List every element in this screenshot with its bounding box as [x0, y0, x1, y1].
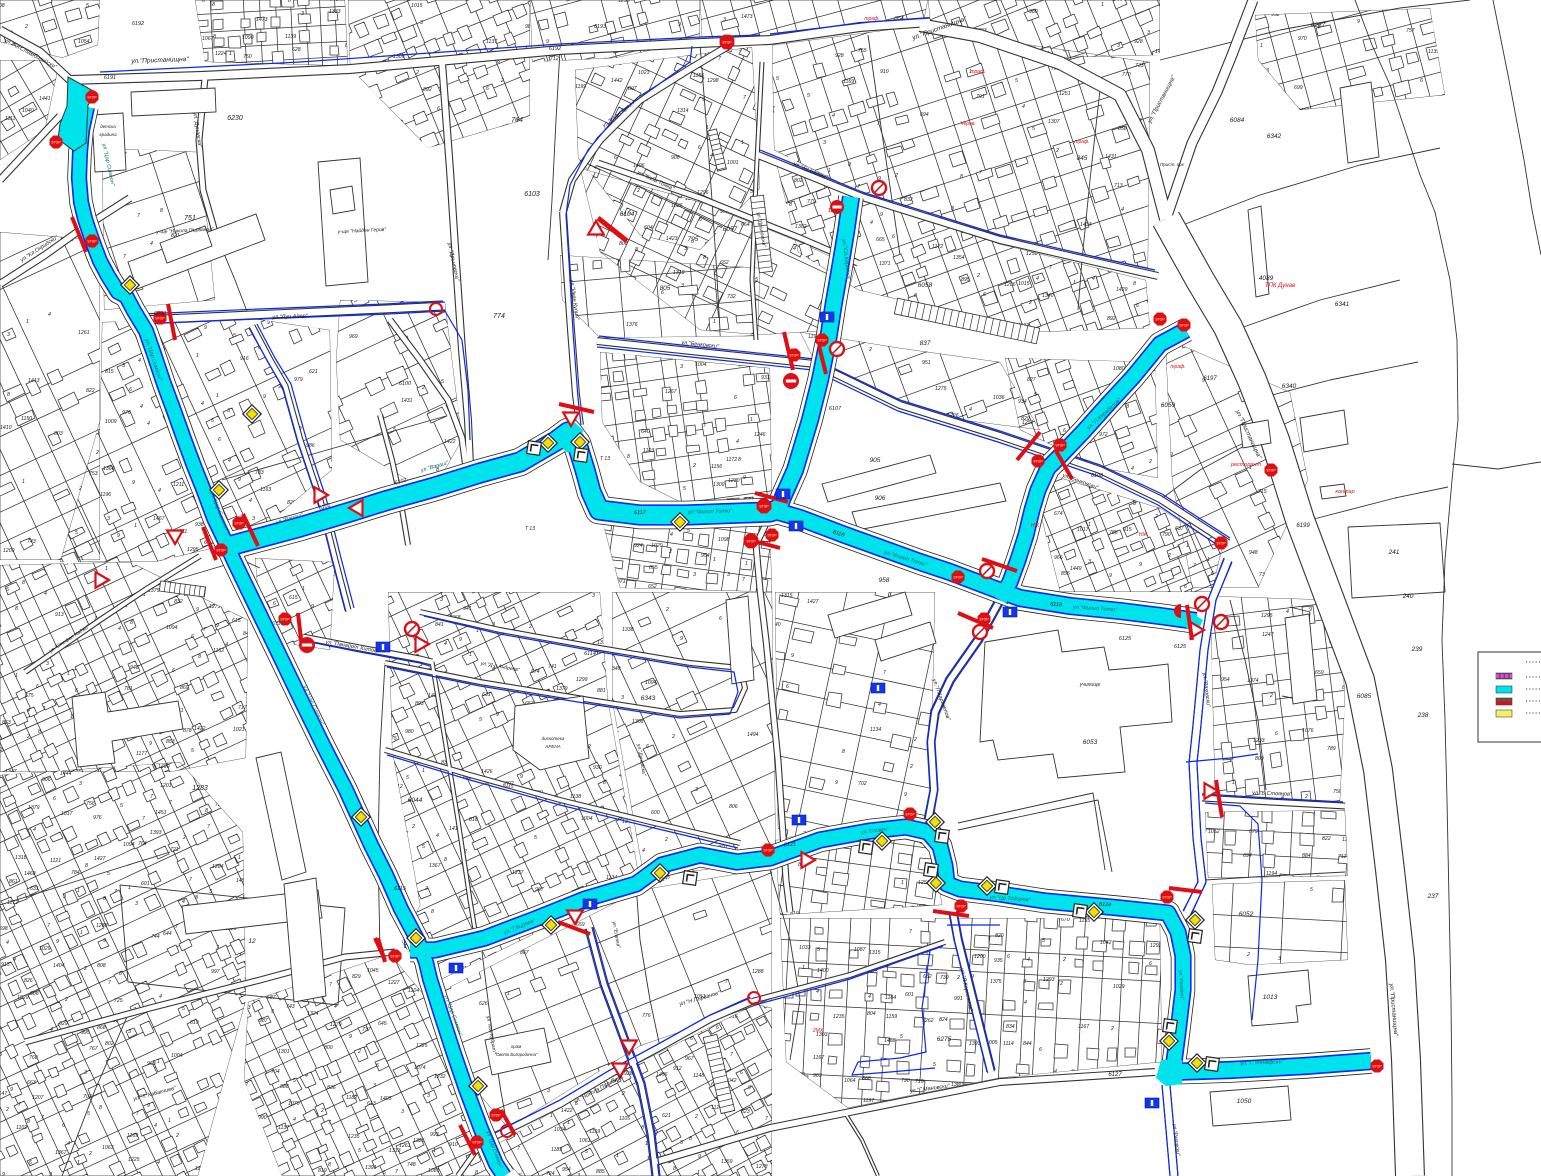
svg-text:6: 6 — [786, 684, 789, 690]
svg-text:5: 5 — [441, 379, 444, 385]
svg-text:2: 2 — [1269, 693, 1273, 699]
svg-text:836: 836 — [327, 1085, 336, 1091]
svg-text:913: 913 — [55, 612, 64, 618]
svg-text:2: 2 — [182, 835, 186, 841]
svg-text:1451: 1451 — [155, 810, 167, 816]
svg-text:938: 938 — [195, 522, 204, 528]
svg-text:2: 2 — [528, 624, 532, 630]
svg-text:863: 863 — [2, 720, 11, 726]
svg-text:834: 834 — [1006, 1024, 1015, 1030]
svg-text:1288: 1288 — [96, 923, 108, 929]
svg-text:6115: 6115 — [394, 886, 407, 892]
svg-text:2: 2 — [909, 764, 913, 770]
svg-text:715: 715 — [1258, 489, 1267, 495]
svg-text:6: 6 — [1007, 954, 1010, 960]
svg-text:4: 4 — [44, 591, 47, 597]
svg-text:954: 954 — [1221, 677, 1230, 683]
svg-text:897: 897 — [628, 86, 638, 92]
svg-text:ресторант: ресторант — [1230, 462, 1262, 468]
svg-text:4: 4 — [154, 1123, 157, 1129]
svg-text:2: 2 — [1110, 1026, 1114, 1032]
svg-text:3: 3 — [1117, 43, 1120, 49]
svg-text:1393: 1393 — [150, 830, 162, 836]
svg-text:1070: 1070 — [288, 1101, 300, 1107]
svg-text:1426: 1426 — [481, 769, 493, 775]
svg-text:1307: 1307 — [1048, 119, 1061, 125]
svg-text:1324: 1324 — [307, 1011, 319, 1017]
svg-text:1: 1 — [507, 991, 510, 997]
svg-text:2: 2 — [956, 975, 960, 981]
svg-text:1: 1 — [22, 479, 25, 485]
svg-text:6100: 6100 — [399, 381, 412, 387]
svg-text:993: 993 — [430, 1132, 439, 1138]
svg-text:9: 9 — [49, 1172, 52, 1176]
svg-text:822: 822 — [86, 388, 95, 394]
svg-text:767: 767 — [89, 1046, 99, 1052]
svg-text:9: 9 — [743, 475, 746, 481]
svg-text:713: 713 — [1114, 183, 1123, 189]
svg-text:760: 760 — [29, 1055, 38, 1061]
svg-text:1376: 1376 — [626, 322, 638, 328]
svg-text:6: 6 — [273, 601, 276, 607]
svg-text:8: 8 — [7, 392, 10, 398]
svg-text:1020: 1020 — [651, 543, 663, 549]
svg-text:717: 717 — [238, 705, 248, 711]
svg-text:844: 844 — [1023, 1041, 1032, 1047]
svg-text:6: 6 — [1420, 78, 1423, 84]
svg-text:5: 5 — [211, 418, 214, 424]
svg-text:3: 3 — [0, 1052, 2, 1058]
svg-text:2: 2 — [421, 385, 425, 391]
svg-text:1182: 1182 — [346, 1095, 357, 1101]
svg-text:804: 804 — [867, 1011, 876, 1017]
svg-text:1308: 1308 — [632, 719, 644, 725]
svg-text:1: 1 — [216, 393, 219, 399]
svg-text:764: 764 — [511, 117, 523, 124]
svg-text:3: 3 — [547, 1088, 550, 1094]
svg-text:4: 4 — [138, 358, 141, 364]
svg-text:9: 9 — [2, 1172, 5, 1176]
svg-text:2: 2 — [668, 549, 672, 555]
svg-text:4: 4 — [33, 827, 36, 833]
svg-text:1340: 1340 — [1042, 293, 1054, 299]
svg-text:954: 954 — [701, 553, 710, 559]
svg-text:1: 1 — [134, 523, 137, 529]
svg-text:6342: 6342 — [1267, 133, 1282, 140]
svg-text:826: 826 — [24, 978, 33, 984]
svg-text:8: 8 — [738, 457, 741, 463]
svg-text:1295: 1295 — [1261, 613, 1273, 619]
svg-text:795: 795 — [688, 236, 699, 243]
svg-text:6108: 6108 — [1091, 473, 1104, 479]
svg-text:1: 1 — [302, 586, 305, 592]
svg-text:1036: 1036 — [993, 395, 1005, 401]
svg-text:679: 679 — [1249, 829, 1258, 835]
svg-text:училище: училище — [1079, 682, 1101, 688]
svg-text:2: 2 — [320, 1108, 324, 1114]
svg-text:4: 4 — [159, 994, 162, 1000]
svg-text:3: 3 — [84, 1070, 87, 1076]
svg-text:623: 623 — [741, 1109, 750, 1115]
svg-text:9: 9 — [496, 712, 499, 718]
svg-text:621: 621 — [309, 369, 318, 375]
svg-text:954: 954 — [562, 1167, 571, 1173]
svg-text:659: 659 — [1315, 670, 1324, 676]
svg-text:STOP: STOP — [767, 534, 777, 538]
svg-text:8: 8 — [15, 606, 18, 612]
svg-text:3: 3 — [723, 17, 726, 23]
svg-text:1200: 1200 — [974, 954, 986, 960]
svg-text:881: 881 — [597, 688, 606, 694]
svg-text:908: 908 — [0, 3, 5, 9]
svg-text:645: 645 — [378, 1021, 387, 1027]
svg-text:STOP: STOP — [51, 141, 61, 145]
svg-text:237: 237 — [1427, 893, 1439, 900]
svg-text:790: 790 — [1162, 532, 1171, 538]
svg-text:6: 6 — [1039, 1047, 1042, 1053]
svg-text:1017: 1017 — [61, 811, 74, 817]
svg-text:4: 4 — [816, 989, 819, 995]
svg-text:652: 652 — [923, 974, 932, 980]
svg-text:631: 631 — [482, 692, 491, 698]
svg-text:2: 2 — [692, 463, 696, 469]
svg-text:6: 6 — [614, 155, 617, 161]
svg-text:663: 663 — [27, 1080, 36, 1086]
svg-text:6: 6 — [716, 1025, 719, 1031]
svg-text:ТПК Дунав: ТПК Дунав — [1265, 283, 1295, 289]
svg-text:1314: 1314 — [677, 108, 689, 114]
svg-text:детска: детска — [100, 124, 116, 129]
svg-text:915: 915 — [1123, 527, 1132, 533]
svg-text:652: 652 — [720, 260, 729, 266]
svg-text:1354: 1354 — [953, 255, 965, 261]
svg-text:6: 6 — [646, 744, 649, 750]
svg-text:STOP: STOP — [491, 1114, 501, 1118]
svg-text:1410: 1410 — [0, 425, 12, 431]
svg-text:2: 2 — [621, 1091, 625, 1097]
svg-text:4: 4 — [1092, 276, 1095, 282]
svg-text:1040: 1040 — [22, 108, 34, 114]
svg-text:1: 1 — [567, 1120, 570, 1126]
svg-text:905: 905 — [870, 457, 881, 464]
svg-text:1098: 1098 — [718, 537, 730, 543]
svg-text:1206: 1206 — [1004, 282, 1016, 288]
svg-text:ул."Луи Айер": ул."Луи Айер" — [271, 312, 308, 320]
svg-text:6: 6 — [719, 616, 722, 622]
svg-text:615: 615 — [289, 595, 298, 601]
svg-text:867: 867 — [520, 950, 530, 956]
svg-text:1130: 1130 — [258, 0, 269, 1]
svg-text:STOP: STOP — [390, 955, 400, 959]
svg-text:3: 3 — [1023, 979, 1026, 985]
svg-text:6125: 6125 — [1119, 636, 1132, 642]
svg-text:783: 783 — [255, 470, 264, 476]
svg-text:8: 8 — [1133, 281, 1136, 287]
svg-text:757: 757 — [1406, 28, 1416, 34]
svg-text:806: 806 — [729, 804, 738, 810]
svg-text:траф.: траф. — [970, 69, 985, 75]
svg-text:1147: 1147 — [0, 1091, 8, 1097]
svg-text:9: 9 — [1139, 562, 1142, 568]
svg-text:6: 6 — [1136, 303, 1139, 309]
svg-text:8: 8 — [288, 0, 291, 4]
svg-text:951: 951 — [922, 360, 931, 366]
svg-text:1177: 1177 — [136, 751, 148, 757]
svg-text:5: 5 — [817, 947, 820, 953]
svg-text:764: 764 — [138, 841, 147, 847]
svg-text:5: 5 — [182, 1006, 185, 1012]
svg-text:3: 3 — [1088, 559, 1091, 565]
svg-text:948: 948 — [130, 665, 139, 671]
svg-text:2: 2 — [868, 347, 872, 353]
svg-text:1368: 1368 — [103, 466, 115, 472]
svg-text:1196: 1196 — [100, 492, 111, 498]
svg-text:1: 1 — [1073, 280, 1076, 286]
svg-text:906: 906 — [671, 155, 680, 161]
svg-text:1172: 1172 — [726, 457, 737, 463]
svg-text:1139: 1139 — [285, 34, 296, 40]
svg-text:1172: 1172 — [932, 244, 943, 250]
svg-text:1431: 1431 — [401, 398, 413, 404]
svg-text:2: 2 — [24, 24, 28, 30]
svg-text:8: 8 — [641, 1125, 644, 1131]
svg-text:4: 4 — [969, 407, 972, 413]
svg-text:239: 239 — [1411, 646, 1423, 653]
svg-text:STOP: STOP — [1266, 469, 1276, 473]
svg-text:6: 6 — [75, 688, 78, 694]
svg-text:9: 9 — [103, 938, 106, 944]
svg-text:8: 8 — [914, 293, 917, 299]
svg-text:1: 1 — [1186, 543, 1189, 549]
svg-text:1494: 1494 — [747, 732, 759, 738]
svg-text:1: 1 — [1101, 2, 1104, 8]
svg-text:659: 659 — [576, 922, 585, 928]
svg-text:1: 1 — [157, 1059, 160, 1065]
svg-text:832: 832 — [174, 599, 183, 605]
svg-text:5: 5 — [776, 76, 779, 82]
svg-text:"Свето Богородична": "Свето Богородична" — [495, 1052, 538, 1057]
svg-text:8: 8 — [160, 208, 163, 214]
svg-text:6124: 6124 — [1099, 902, 1112, 909]
svg-text:2: 2 — [357, 1049, 361, 1055]
svg-text:5: 5 — [358, 1148, 361, 1154]
svg-text:4: 4 — [118, 626, 121, 632]
svg-text:2: 2 — [665, 607, 669, 613]
svg-text:1169: 1169 — [127, 1133, 138, 1139]
svg-text:800: 800 — [324, 1045, 333, 1051]
svg-text:5: 5 — [1310, 887, 1313, 893]
svg-text:4: 4 — [793, 246, 796, 252]
svg-text:855: 855 — [649, 565, 658, 571]
svg-text:241: 241 — [1388, 549, 1400, 556]
svg-text:6: 6 — [734, 395, 737, 401]
svg-text:743: 743 — [286, 1004, 295, 1010]
svg-text:1333: 1333 — [329, 9, 341, 15]
svg-text:704: 704 — [271, 1069, 280, 1075]
svg-text:STOP: STOP — [763, 849, 773, 853]
svg-text:1: 1 — [422, 768, 425, 774]
svg-text:Т 13: Т 13 — [525, 526, 535, 532]
svg-text:815: 815 — [105, 369, 114, 375]
svg-text:845: 845 — [1077, 155, 1088, 162]
svg-text:756: 756 — [86, 801, 95, 807]
svg-text:8: 8 — [444, 857, 447, 863]
svg-text:1: 1 — [433, 1148, 436, 1154]
svg-text:1315: 1315 — [869, 950, 881, 956]
svg-text:12: 12 — [248, 938, 256, 945]
svg-text:1301: 1301 — [278, 1049, 290, 1055]
svg-text:траф.: траф. — [864, 16, 879, 22]
svg-text:3: 3 — [373, 1083, 376, 1089]
svg-text:1076: 1076 — [1302, 728, 1314, 734]
svg-text:9: 9 — [149, 741, 152, 747]
svg-text:1034: 1034 — [554, 1127, 566, 1133]
svg-text:5: 5 — [120, 803, 123, 809]
svg-text:Прист. орх: Прист. орх — [1160, 162, 1185, 167]
svg-text:8: 8 — [960, 174, 963, 180]
svg-text:997: 997 — [211, 969, 221, 975]
svg-text:3: 3 — [227, 408, 230, 414]
svg-text:6: 6 — [36, 684, 39, 690]
svg-text:715: 715 — [915, 1079, 924, 1085]
svg-text:1449: 1449 — [1070, 566, 1082, 572]
svg-text:9: 9 — [349, 1034, 352, 1040]
svg-text:9: 9 — [880, 212, 883, 218]
svg-text:1315: 1315 — [781, 593, 793, 599]
svg-text:1103: 1103 — [643, 448, 654, 454]
svg-text:9: 9 — [1357, 19, 1360, 25]
svg-text:1087: 1087 — [854, 947, 867, 953]
svg-text:STOP: STOP — [759, 505, 769, 509]
svg-text:837: 837 — [920, 340, 931, 347]
svg-text:1379: 1379 — [28, 805, 40, 811]
svg-text:8: 8 — [603, 780, 606, 786]
svg-text:1015: 1015 — [1018, 281, 1030, 287]
svg-text:739: 739 — [940, 975, 949, 981]
svg-text:802: 802 — [794, 178, 803, 184]
svg-text:градина: градина — [99, 132, 117, 137]
svg-text:4: 4 — [1121, 207, 1124, 213]
svg-text:АРЕНА: АРЕНА — [544, 744, 560, 749]
svg-text:1: 1 — [168, 1118, 171, 1124]
svg-text:1225: 1225 — [416, 1043, 428, 1049]
svg-text:6: 6 — [892, 234, 895, 240]
svg-text:5: 5 — [585, 1149, 588, 1155]
svg-text:6084: 6084 — [1230, 117, 1245, 124]
svg-text:6098: 6098 — [154, 311, 167, 317]
svg-text:1: 1 — [43, 706, 46, 712]
svg-text:1045: 1045 — [367, 968, 379, 974]
svg-text:4: 4 — [594, 165, 597, 171]
svg-text:674: 674 — [1054, 511, 1063, 517]
svg-text:1: 1 — [77, 1160, 80, 1166]
svg-text:3: 3 — [420, 20, 423, 26]
svg-text:6058: 6058 — [918, 282, 933, 289]
svg-text:6: 6 — [698, 145, 701, 151]
svg-text:8: 8 — [703, 255, 706, 261]
svg-text:878: 878 — [183, 728, 192, 734]
svg-text:1009: 1009 — [105, 419, 117, 425]
svg-text:8: 8 — [789, 202, 792, 208]
svg-text:934: 934 — [1018, 399, 1027, 405]
svg-text:1288: 1288 — [752, 969, 764, 975]
svg-text:824: 824 — [939, 1017, 948, 1023]
svg-text:1275: 1275 — [935, 386, 947, 392]
svg-text:8: 8 — [689, 1136, 692, 1142]
svg-text:1371: 1371 — [879, 261, 891, 267]
svg-text:6114: 6114 — [584, 651, 596, 657]
svg-text:STOP: STOP — [234, 522, 244, 526]
svg-text:912: 912 — [673, 1066, 682, 1072]
svg-text:1052: 1052 — [1208, 829, 1220, 835]
svg-text:1183: 1183 — [551, 1147, 562, 1153]
svg-text:5: 5 — [1015, 78, 1018, 84]
svg-text:1074: 1074 — [414, 1065, 426, 1071]
svg-text:967: 967 — [685, 1056, 695, 1062]
svg-text:741: 741 — [548, 664, 557, 670]
svg-text:6: 6 — [1211, 571, 1214, 577]
svg-text:6: 6 — [129, 387, 132, 393]
svg-text:1224: 1224 — [215, 51, 227, 57]
svg-text:1225: 1225 — [128, 1157, 140, 1163]
svg-text:699: 699 — [1294, 85, 1303, 91]
svg-text:8: 8 — [85, 863, 88, 869]
svg-text:4: 4 — [1024, 1000, 1027, 1006]
svg-text:1029: 1029 — [17, 995, 29, 1001]
svg-text:972: 972 — [1099, 432, 1108, 438]
svg-text:4: 4 — [670, 532, 673, 538]
svg-text:2: 2 — [1062, 957, 1066, 963]
svg-text:4: 4 — [1131, 466, 1134, 472]
svg-text:5: 5 — [479, 717, 482, 723]
svg-text:1: 1 — [616, 1153, 619, 1159]
svg-text:1441: 1441 — [39, 96, 51, 102]
svg-text:1: 1 — [1207, 557, 1210, 563]
svg-text:1473: 1473 — [256, 17, 268, 23]
svg-text:964: 964 — [1117, 0, 1126, 3]
svg-text:STOP: STOP — [1372, 1065, 1382, 1069]
svg-text:STOP: STOP — [722, 41, 732, 45]
svg-text:траф.: траф. — [1170, 364, 1185, 370]
svg-text:240: 240 — [1402, 593, 1414, 600]
svg-text:1211: 1211 — [173, 482, 184, 488]
svg-text:5: 5 — [683, 486, 686, 492]
svg-text:1081: 1081 — [428, 1168, 440, 1174]
svg-text:976: 976 — [93, 815, 102, 821]
svg-text:2: 2 — [64, 997, 68, 1003]
svg-text:1292: 1292 — [1150, 943, 1162, 949]
svg-text:1237: 1237 — [512, 870, 525, 876]
svg-text:1201: 1201 — [160, 783, 172, 789]
svg-text:790: 790 — [901, 1078, 910, 1084]
svg-text:храм: храм — [510, 1044, 521, 1049]
svg-text:621: 621 — [662, 1113, 671, 1119]
svg-text:976: 976 — [122, 410, 131, 416]
svg-text:1422: 1422 — [561, 1108, 573, 1114]
svg-text:1367: 1367 — [55, 1150, 68, 1156]
svg-text:8: 8 — [1126, 404, 1129, 410]
svg-text:868: 868 — [862, 1076, 871, 1082]
svg-text:5: 5 — [680, 1140, 683, 1146]
svg-text:9: 9 — [56, 939, 59, 945]
svg-text:5: 5 — [233, 333, 236, 339]
svg-text:3: 3 — [122, 363, 125, 369]
svg-text:906: 906 — [875, 495, 886, 502]
svg-text:967: 967 — [535, 887, 545, 893]
svg-text:3: 3 — [7, 332, 10, 338]
svg-text:6: 6 — [191, 634, 194, 640]
svg-text:3: 3 — [621, 695, 624, 701]
